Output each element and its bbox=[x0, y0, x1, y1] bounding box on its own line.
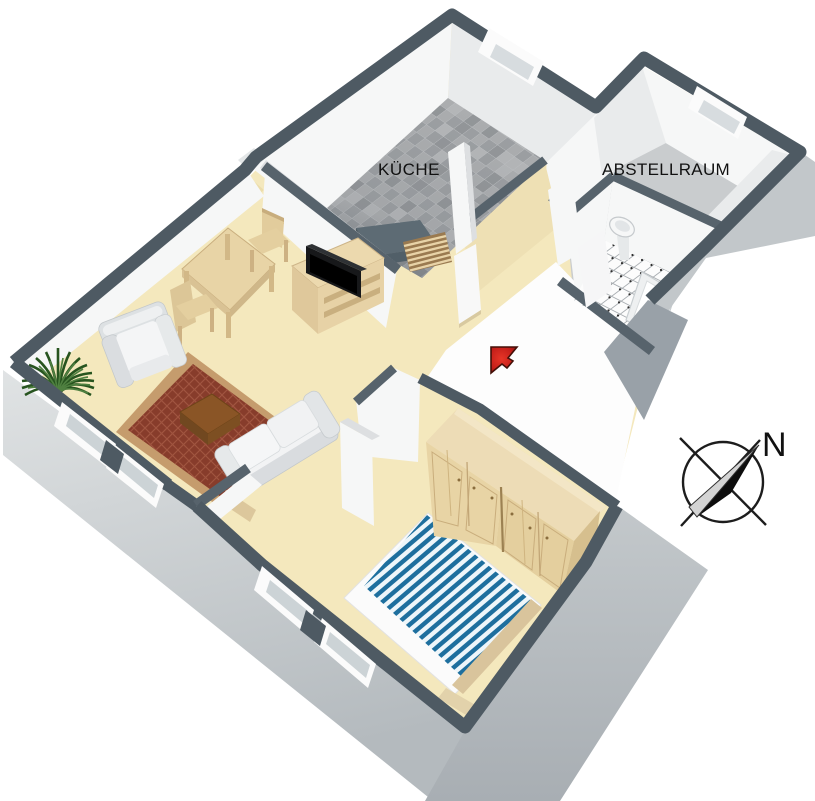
svg-text:N: N bbox=[762, 426, 787, 464]
svg-text:KÜCHE: KÜCHE bbox=[378, 160, 440, 179]
svg-text:ABSTELLRAUM: ABSTELLRAUM bbox=[602, 160, 730, 179]
